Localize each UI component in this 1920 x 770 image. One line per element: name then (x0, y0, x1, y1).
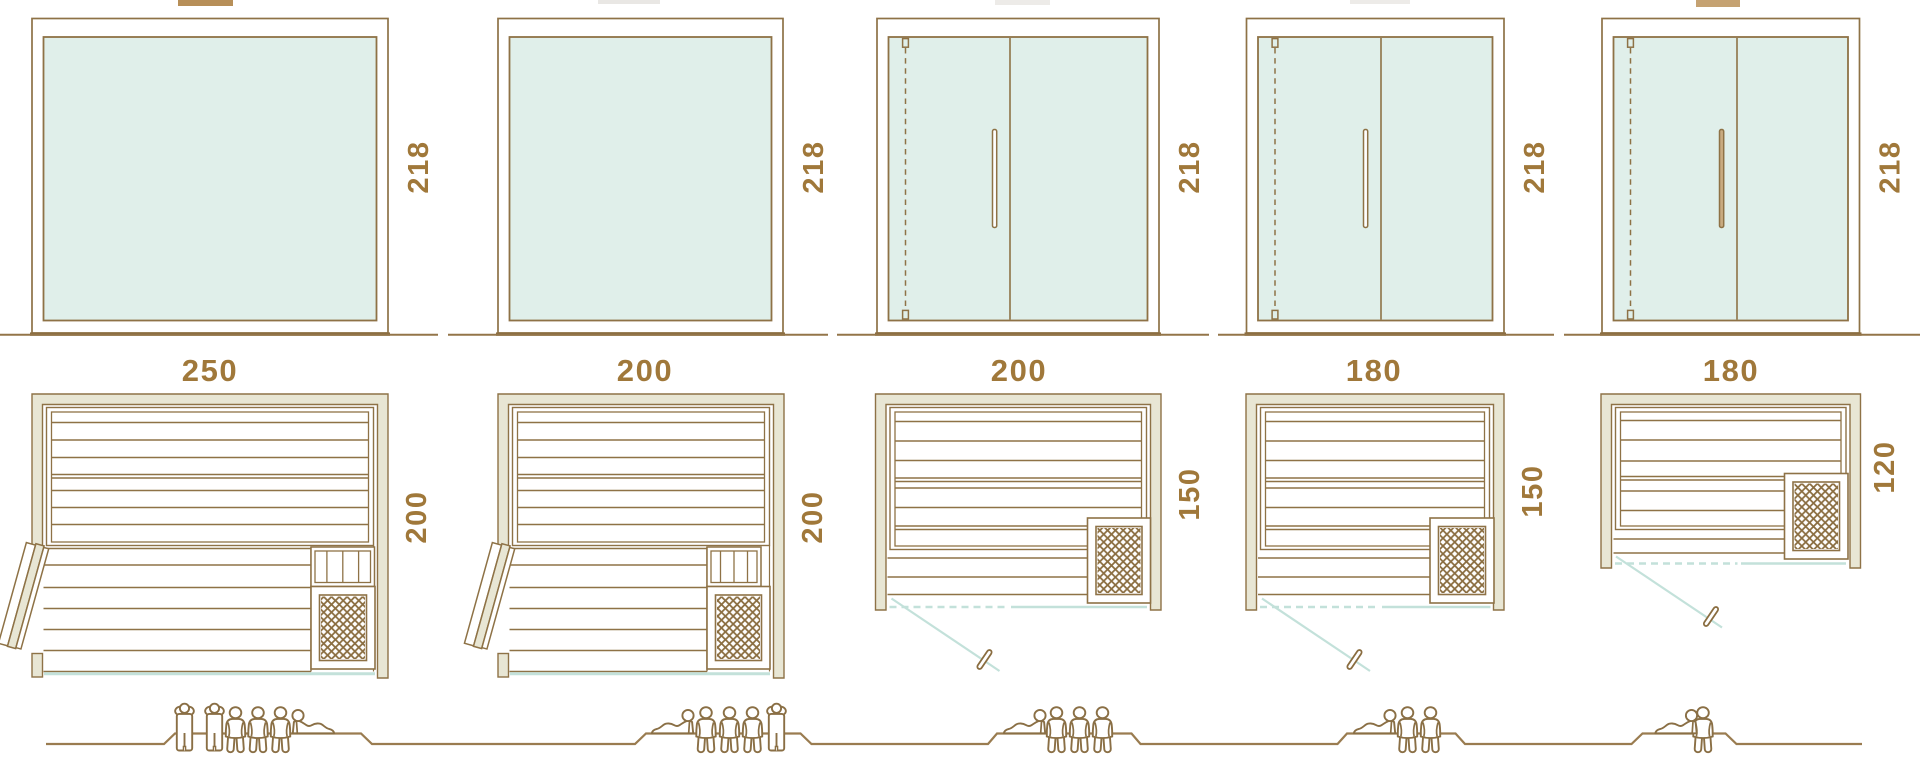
svg-text:200: 200 (991, 353, 1048, 388)
svg-text:218: 218 (1519, 140, 1551, 193)
svg-text:200: 200 (617, 353, 674, 388)
svg-text:218: 218 (798, 140, 830, 193)
svg-text:150: 150 (1517, 464, 1549, 517)
svg-text:180: 180 (1346, 353, 1403, 388)
svg-text:218: 218 (1174, 140, 1206, 193)
svg-text:150: 150 (1174, 467, 1206, 520)
svg-text:250: 250 (182, 353, 239, 388)
svg-text:180: 180 (1703, 353, 1760, 388)
svg-text:218: 218 (1875, 140, 1907, 193)
svg-text:200: 200 (797, 490, 829, 543)
svg-text:120: 120 (1869, 440, 1901, 493)
svg-text:200: 200 (401, 490, 433, 543)
svg-text:218: 218 (403, 140, 435, 193)
